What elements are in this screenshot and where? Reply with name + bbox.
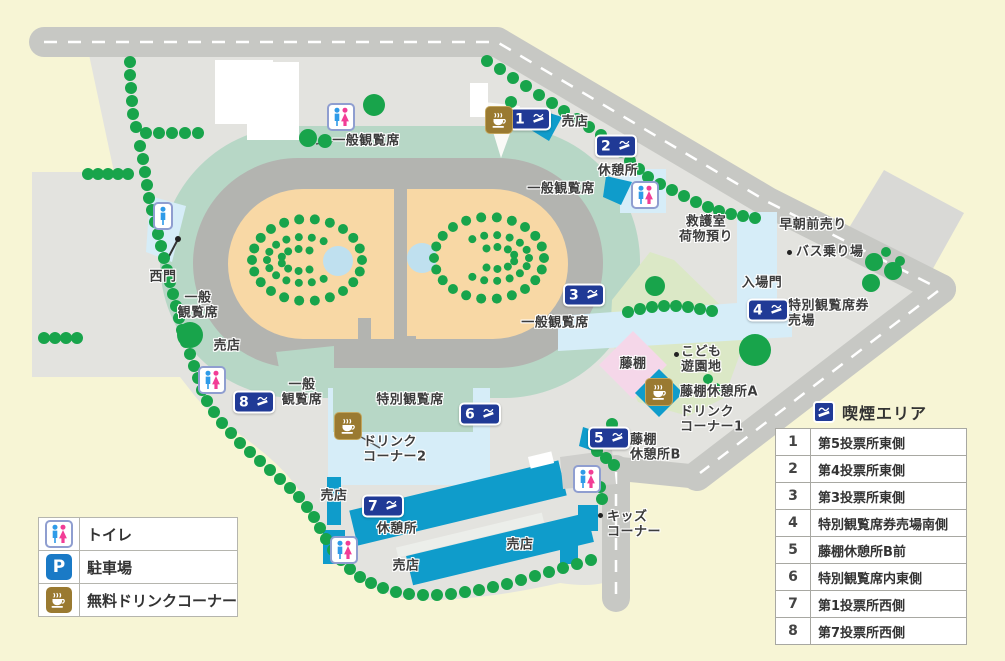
legend-facility-row: トイレ [39, 518, 237, 550]
smoking-badge-number: 3 [569, 288, 579, 302]
tree [282, 236, 290, 244]
parking-icon: P [46, 554, 72, 580]
tree [530, 275, 540, 285]
tree [263, 256, 271, 264]
smoking-legend-row: 7第1投票所西側 [776, 590, 966, 617]
tree [320, 237, 328, 245]
map-label-firstaid: 救護室 荷物預り [679, 215, 733, 246]
tree [338, 224, 348, 234]
tree [461, 290, 471, 300]
tree [299, 129, 317, 147]
tree [493, 277, 501, 285]
smoking-badge-number: 4 [753, 303, 763, 317]
smoking-legend-number: 6 [776, 564, 811, 590]
tree [557, 562, 569, 574]
map-label-shop-w: 売店 [213, 338, 240, 353]
tree [134, 140, 146, 152]
tree [493, 231, 501, 239]
map-label-early-sales: 早朝前売り [779, 217, 847, 232]
tree [596, 493, 608, 505]
tree [38, 332, 50, 344]
tree [507, 290, 517, 300]
tree [862, 274, 880, 292]
smoking-legend-number: 3 [776, 483, 811, 509]
tree [461, 216, 471, 226]
tree [308, 278, 316, 286]
tree [130, 121, 142, 133]
tree [272, 271, 280, 279]
tree [507, 216, 517, 226]
tree [294, 296, 304, 306]
tree [60, 332, 72, 344]
tree [71, 332, 83, 344]
tree [658, 300, 670, 312]
map-label-gen-ne: 一般観覧席 [527, 181, 595, 196]
tree [645, 276, 665, 296]
tree [481, 55, 493, 67]
smoking-area-badge-1: 1 [509, 108, 551, 131]
tree [533, 89, 545, 101]
toilet-icon [330, 536, 358, 564]
tree [254, 455, 266, 467]
tree [265, 248, 273, 256]
tree [525, 254, 533, 262]
tree [137, 153, 149, 165]
tree [355, 267, 365, 277]
map-label-special-stand: 特別観覧席 [376, 392, 444, 407]
tree [510, 257, 518, 265]
tree [301, 501, 313, 513]
free-drink-icon [46, 587, 72, 613]
tree [678, 190, 690, 202]
tree [249, 267, 259, 277]
tree [670, 300, 682, 312]
infield-notch-right [404, 336, 416, 368]
tree [520, 284, 530, 294]
tree [516, 239, 524, 247]
tree [325, 292, 335, 302]
smoking-area-badge-5: 5 [588, 427, 630, 450]
smoking-badge-number: 1 [515, 112, 525, 126]
tree [256, 277, 266, 287]
tree [529, 570, 541, 582]
tree [501, 578, 513, 590]
tree [325, 218, 335, 228]
keirin-facility-map: 一般観覧席売店休憩所一般観覧席救護室 荷物預り早朝前売りバス乗り場入場門特別観覧… [0, 0, 1005, 661]
map-label-shop-s1: 売店 [320, 488, 347, 503]
tree [377, 582, 389, 594]
free-drink-icon [334, 412, 362, 440]
tree [473, 584, 485, 596]
legend-facility-label: トイレ [80, 524, 132, 545]
map-label-shop-s2: 売店 [392, 558, 419, 573]
map-label-west-gate: 西門 [149, 269, 176, 284]
tree [306, 246, 314, 254]
tree [429, 253, 439, 263]
tree [284, 482, 296, 494]
tree [523, 262, 531, 270]
tree [865, 253, 883, 271]
legend-facility-label: 無料ドリンクコーナー [80, 590, 237, 611]
smoking-legend-number: 8 [776, 618, 811, 644]
tree [417, 589, 429, 601]
tree [295, 245, 303, 253]
tree [694, 303, 706, 315]
smoking-badge-number: 5 [594, 431, 604, 445]
tree [487, 581, 499, 593]
tree [266, 286, 276, 296]
map-label-rest-s: 休憩所 [377, 521, 418, 536]
map-label-gen-e: 一般観覧席 [521, 315, 589, 330]
tree [166, 127, 178, 139]
tree [308, 234, 316, 242]
smoking-legend-row: 6特別観覧席内東側 [776, 563, 966, 590]
tree [314, 522, 326, 534]
tree [348, 233, 358, 243]
smoking-legend-number: 2 [776, 456, 811, 482]
tree [294, 214, 304, 224]
smoking-legend-label: 特別観覧席内東側 [811, 568, 922, 587]
smoking-badge-number: 8 [239, 395, 249, 409]
tree [702, 201, 714, 213]
tree [155, 240, 167, 252]
toilet-icon [45, 520, 73, 548]
tree [634, 303, 646, 315]
tree [438, 231, 448, 241]
map-label-drink-corner-1: ドリンク コーナー1 [680, 405, 744, 436]
tree [666, 184, 678, 196]
tree [504, 263, 512, 271]
tree [295, 233, 303, 241]
tree [143, 192, 155, 204]
tree [504, 245, 512, 253]
tree [208, 406, 220, 418]
tree [480, 232, 488, 240]
tree [348, 277, 358, 287]
smoking-icon [770, 301, 783, 320]
smoking-legend-row: 8第7投票所西側 [776, 617, 966, 644]
tree [571, 558, 583, 570]
legend-facility-row: 無料ドリンクコーナー [39, 583, 237, 616]
smoking-legend-title-text: 喫煙エリア [842, 400, 927, 424]
tree [506, 234, 514, 242]
map-label-gen-sw: 一般 観覧席 [282, 378, 323, 409]
map-label-shop-s3: 売店 [506, 537, 533, 552]
smoking-legend-number: 5 [776, 537, 811, 563]
smoking-legend-label: 第1投票所西側 [811, 595, 905, 614]
infield-notch-left [358, 318, 371, 362]
tree [247, 255, 257, 265]
tree [390, 586, 402, 598]
tree [516, 269, 524, 277]
tree [49, 332, 61, 344]
tree [306, 266, 314, 274]
tree [282, 276, 290, 284]
tree [278, 253, 286, 261]
smoking-legend-label: 第4投票所東側 [811, 460, 905, 479]
tree [459, 586, 471, 598]
tree [682, 301, 694, 313]
toilet-icon [153, 202, 173, 230]
legend-facility-label: 駐車場 [80, 557, 132, 578]
tree [739, 334, 771, 366]
map-label-wisteria: 藤棚 [619, 356, 646, 371]
smoking-icon [586, 286, 599, 305]
tree [543, 566, 555, 578]
tree [139, 166, 151, 178]
smoking-legend-number: 7 [776, 591, 811, 617]
smoking-legend-row: 1第5投票所東側 [776, 429, 966, 455]
tree [179, 127, 191, 139]
smoking-legend-row: 3第3投票所東側 [776, 482, 966, 509]
tree [515, 574, 527, 586]
smoking-area-badge-3: 3 [563, 284, 605, 307]
tree [225, 427, 237, 439]
tree [520, 80, 532, 92]
tree [124, 69, 136, 81]
tree [266, 224, 276, 234]
pond-left [323, 246, 353, 276]
map-label-wisteria-rest-a: 藤棚休憩所A [680, 384, 758, 399]
tree [264, 464, 276, 476]
tree [585, 554, 597, 566]
tree [184, 348, 196, 360]
tree [338, 286, 348, 296]
label-bullet [674, 352, 679, 357]
tree [438, 275, 448, 285]
smoking-legend-number: 4 [776, 510, 811, 536]
tree [403, 588, 415, 600]
tree [749, 212, 761, 224]
smoking-area-badge-2: 2 [595, 135, 637, 158]
tree [272, 241, 280, 249]
smoking-badge-number: 2 [601, 139, 611, 153]
tree [122, 168, 134, 180]
smoking-icon [532, 110, 545, 129]
smoking-area-badge-4: 4 [747, 299, 789, 322]
tree [537, 241, 547, 251]
tree [265, 264, 273, 272]
tree [293, 491, 305, 503]
tree [216, 417, 228, 429]
map-label-rest-ne: 休憩所 [598, 163, 639, 178]
tree [448, 284, 458, 294]
tree [494, 63, 506, 75]
tree [507, 72, 519, 84]
smoking-icon [611, 429, 624, 448]
tree [153, 127, 165, 139]
tree [365, 577, 377, 589]
tree [363, 94, 385, 116]
tree [493, 243, 501, 251]
tree [476, 294, 486, 304]
tree [431, 241, 441, 251]
tree [492, 212, 502, 222]
tree [431, 589, 443, 601]
tree [483, 264, 491, 272]
tree [140, 127, 152, 139]
legend-icon-cell: P [39, 551, 80, 583]
tree [480, 276, 488, 284]
tree [646, 301, 658, 313]
tree [124, 56, 136, 68]
tree [318, 134, 332, 148]
tree [308, 511, 320, 523]
smoking-area-badge-7: 7 [362, 495, 404, 518]
tree [492, 294, 502, 304]
map-label-drink-corner-2: ドリンク コーナー2 [363, 435, 427, 466]
tree [320, 275, 328, 283]
smoking-legend-title: 喫煙エリア [813, 400, 927, 424]
tree [703, 374, 713, 384]
tree [476, 212, 486, 222]
tree [274, 473, 286, 485]
legend-facility-row: P駐車場 [39, 550, 237, 583]
smoking-icon [256, 393, 269, 412]
tree [431, 265, 441, 275]
smoking-legend-label: 第5投票所東側 [811, 433, 905, 452]
smoking-badge-number: 6 [465, 407, 475, 421]
tree [881, 247, 891, 257]
tree [706, 305, 718, 317]
tree [608, 459, 620, 471]
smoking-area-badge-6: 6 [459, 403, 501, 426]
tree [295, 267, 303, 275]
tree [310, 214, 320, 224]
tree [284, 265, 292, 273]
map-label-entrance-gate: 入場門 [742, 275, 783, 290]
tree [284, 247, 292, 255]
map-label-shop-n: 売店 [561, 114, 588, 129]
tree [141, 179, 153, 191]
toilet-icon [198, 366, 226, 394]
map-label-kids-corner: キッズ コーナー [607, 510, 661, 541]
tree [127, 108, 139, 120]
free-drink-icon [485, 106, 513, 134]
tree [530, 231, 540, 241]
smoking-legend-row: 5藤棚休憩所B前 [776, 536, 966, 563]
map-label-bus-stop: バス乗り場 [796, 244, 864, 259]
smoking-area-icon [813, 401, 835, 423]
legend-icon-cell [39, 584, 80, 616]
tree [448, 222, 458, 232]
smoking-badge-number: 7 [368, 499, 378, 513]
tree [622, 306, 634, 318]
smoking-icon [618, 137, 631, 156]
smoking-icon [385, 497, 398, 516]
tree [177, 322, 203, 348]
free-drink-icon [645, 378, 673, 406]
smoking-legend-label: 第3投票所東側 [811, 487, 905, 506]
smoking-area-badge-8: 8 [233, 391, 275, 414]
smoking-legend-label: 藤棚休憩所B前 [811, 541, 906, 560]
tree [539, 253, 549, 263]
map-label-special-ticket: 特別観覧席券 売場 [788, 299, 869, 330]
facilities-legend: トイレP駐車場 無料ドリンクコーナー [38, 517, 238, 617]
tree [354, 571, 366, 583]
tree [523, 246, 531, 254]
tree [483, 244, 491, 252]
smoking-legend-label: 特別観覧席券売場南側 [811, 514, 948, 533]
map-label-gen-nw: 一般観覧席 [332, 133, 400, 148]
map-label-kids-park: こども 遊園地 [681, 345, 722, 376]
toilet-icon [631, 181, 659, 209]
smoking-legend-table: 1第5投票所東側2第4投票所東側3第3投票所東側4特別観覧席券売場南側5藤棚休憩… [775, 428, 967, 645]
label-bullet [787, 250, 792, 255]
tree [445, 588, 457, 600]
tree [256, 233, 266, 243]
tree [468, 235, 476, 243]
legend-icon-cell [39, 518, 80, 550]
tree [310, 296, 320, 306]
tree [520, 222, 530, 232]
map-label-gen-w: 一般 観覧席 [178, 291, 219, 322]
tree [468, 273, 476, 281]
tree [192, 127, 204, 139]
map-label-wisteria-rest-b: 藤棚 休憩所B [630, 433, 681, 464]
tree [249, 243, 259, 253]
tree [125, 82, 137, 94]
label-bullet [598, 513, 603, 518]
tree [158, 252, 170, 264]
tree [279, 218, 289, 228]
tree [537, 265, 547, 275]
tree [234, 437, 246, 449]
tree [895, 256, 905, 266]
smoking-legend-row: 4特別観覧席券売場南側 [776, 509, 966, 536]
tree [244, 446, 256, 458]
tree [344, 563, 356, 575]
smoking-icon [482, 405, 495, 424]
tree [279, 292, 289, 302]
tree [126, 95, 138, 107]
smoking-legend-label: 第7投票所西側 [811, 622, 905, 641]
tree [201, 395, 213, 407]
tree [357, 255, 367, 265]
tree [690, 196, 702, 208]
tree [355, 243, 365, 253]
tree [737, 210, 749, 222]
toilet-icon [573, 465, 601, 493]
tree [493, 265, 501, 273]
toilet-icon [327, 103, 355, 131]
smoking-legend-row: 2第4投票所東側 [776, 455, 966, 482]
smoking-legend-number: 1 [776, 429, 811, 455]
tree [506, 274, 514, 282]
tree [295, 279, 303, 287]
